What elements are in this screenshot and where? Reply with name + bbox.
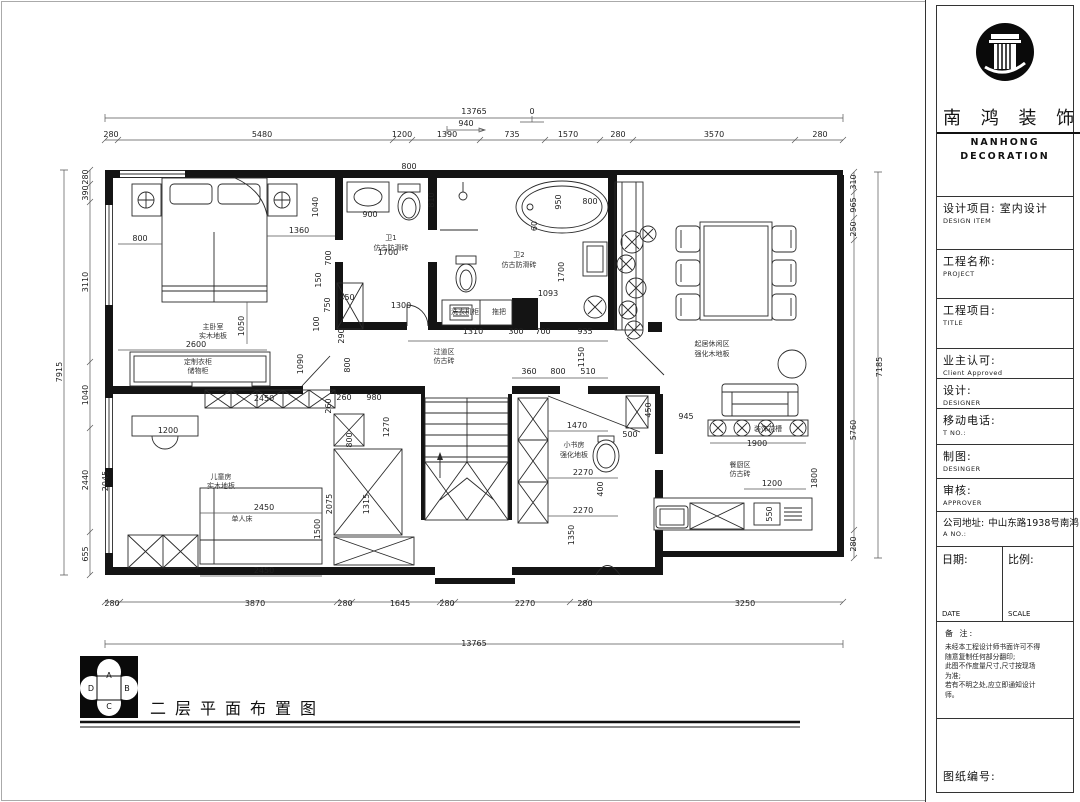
kitchen-counter: [654, 498, 812, 530]
dim-label: 450: [339, 293, 354, 302]
date-sub: DATE: [942, 610, 960, 618]
dim-label: 2045: [101, 471, 110, 491]
dim-label: 1200: [392, 130, 412, 139]
field-label: 设计项目:: [943, 202, 996, 215]
dim-label: 1200: [762, 479, 782, 488]
dim-label: 280: [812, 130, 827, 139]
master-bed: [162, 178, 267, 302]
dim-label: 980: [366, 393, 381, 402]
sofa: [722, 384, 798, 416]
title-block: 南 鸿 装 饰 NANHONG DECORATION 设计项目:室内设计 DES…: [925, 0, 1080, 802]
dim-label: 3570: [704, 130, 724, 139]
dim-label: 400: [596, 481, 605, 496]
dim-label: 1093: [538, 289, 558, 298]
note-line: 为准;: [945, 672, 1067, 682]
dim-label: 280: [103, 130, 118, 139]
dim-label: 1570: [558, 130, 578, 139]
plants: [615, 182, 656, 339]
note-line: 若有不明之处,应立即通知设计: [945, 681, 1067, 691]
room-label: 过道区: [434, 347, 455, 356]
dim-label: 2075: [325, 494, 334, 514]
dim-label: 0: [529, 107, 534, 116]
field-sub: Client Approved: [943, 369, 1067, 377]
dim-label: 5760: [849, 420, 858, 440]
dim-label: 1050: [237, 316, 246, 336]
dining-set: [676, 222, 796, 320]
compass-c: C: [106, 702, 112, 711]
field-label: 公司地址:: [943, 518, 984, 529]
dim-label: 2450: [254, 503, 274, 512]
dim-label: 280: [610, 130, 625, 139]
dim-label: 260: [336, 393, 351, 402]
room-label: 小书房: [564, 440, 585, 449]
room-label: 卫2: [513, 251, 524, 259]
field-label: 工程名称:: [943, 255, 996, 268]
date-scale-row: 日期: DATE 比例: SCALE: [937, 546, 1073, 622]
field-label: 移动电话:: [943, 414, 996, 427]
note-line: 随意复制任何部分翻印;: [945, 653, 1067, 663]
dim-label: 450: [644, 402, 653, 417]
living-door-leaf: [627, 338, 664, 375]
room-label: 仿古防滑砖: [502, 260, 537, 269]
dim-label: 945: [678, 412, 693, 421]
dim-label: 1645: [390, 599, 410, 608]
dim-label: 2450: [254, 566, 274, 575]
field-design-item: 设计项目:室内设计 DESIGN ITEM: [937, 196, 1073, 249]
field-value: 中山东路1938号南鸿: [988, 518, 1079, 529]
room-label: 单人床: [232, 514, 253, 523]
dim-label: 2270: [515, 599, 535, 608]
room-label: 拖把: [492, 307, 506, 316]
column-logo-icon: [973, 20, 1037, 88]
floor-plan-drawing: 1376528054801200139094073515702803570280…: [0, 0, 925, 802]
compass-a: A: [106, 671, 112, 680]
scale-label: 比例:: [1008, 551, 1068, 567]
notes-block: 备 注: 未经本工程设计师书面许可不得 随意复制任何部分翻印; 此图不作度量尺寸…: [937, 621, 1073, 718]
dim-label: 280: [337, 599, 352, 608]
room-label: 仿古防滑砖: [374, 243, 409, 252]
dim-label: 280: [849, 536, 858, 551]
dim-label: 550: [765, 506, 774, 521]
dim-label: 1470: [567, 421, 587, 430]
dim-label: 800: [343, 357, 352, 372]
field-label: 业主认可:: [943, 354, 996, 367]
dim-label: 250: [849, 221, 858, 236]
stairs-up-arrow: [437, 452, 443, 460]
dim-label: 100: [312, 316, 321, 331]
field-sub: DESINGER: [943, 465, 1067, 473]
room-label: 装饰花槽: [754, 424, 782, 433]
dim-label: 1360: [289, 226, 309, 235]
dim-label: 810: [427, 192, 436, 207]
dim-label: 3870: [245, 599, 265, 608]
room-label: 主卧室: [203, 322, 224, 331]
dim-label: 13765: [461, 639, 486, 648]
dim-label: 360: [521, 367, 536, 376]
room-label: 定制衣柜: [184, 357, 212, 366]
side-table: [778, 350, 806, 378]
field-approver: 审核: APPROVER: [937, 478, 1073, 511]
dim-label: 1040: [311, 197, 320, 217]
field-sub: PROJECT: [943, 270, 1067, 278]
dim-label: 800: [132, 234, 147, 243]
dim-label: 290: [337, 328, 346, 343]
dim-label: 900: [362, 210, 377, 219]
dim-label: 965: [849, 197, 858, 212]
dim-label: 800: [550, 367, 565, 376]
date-label: 日期:: [942, 551, 997, 567]
scale-cell: 比例: SCALE: [1003, 547, 1073, 622]
dim-label: 280: [577, 599, 592, 608]
dim-label: 1040: [81, 385, 90, 405]
dim-label: 700: [535, 327, 550, 336]
field-label: 制图:: [943, 450, 972, 463]
dim-label: 2270: [573, 506, 593, 515]
field-project-name: 工程名称: PROJECT: [937, 249, 1073, 298]
company-name-en1: NANHONG: [937, 137, 1073, 148]
room-label: 洗衣机柜: [451, 307, 479, 316]
dim-label: 800: [401, 162, 416, 171]
dim-label: 700: [324, 250, 333, 265]
drawing-number-block: 图纸编号:: [937, 718, 1073, 792]
dim-label: 260: [324, 398, 333, 413]
compass-d: D: [88, 684, 94, 693]
kids-room: [128, 390, 335, 568]
stairs: [425, 398, 508, 520]
room-label: 强化木地板: [695, 349, 730, 358]
dim-label: 2270: [573, 468, 593, 477]
dim-label: 735: [504, 130, 519, 139]
dim-label: 1310: [463, 327, 483, 336]
dim-label: 1900: [747, 439, 767, 448]
dim-label: 1800: [810, 468, 819, 488]
field-mobile: 移动电话: T NO.:: [937, 408, 1073, 444]
field-sub: TITLE: [943, 319, 1067, 327]
room-label: 实木地板: [199, 331, 227, 340]
field-label: 审核:: [943, 484, 972, 497]
dim-label: 510: [580, 367, 595, 376]
dim-label: 60: [530, 221, 539, 231]
dim-label: 750: [323, 297, 332, 312]
room-label: 仿古砖: [730, 469, 751, 478]
room-label: 强化地板: [560, 450, 588, 459]
room-label: 儿童房: [211, 472, 232, 481]
field-company-address: 公司地址:中山东路1938号南鸿 A NO.:: [937, 511, 1073, 546]
dim-label: 280: [439, 599, 454, 608]
field-project-title: 工程项目: TITLE: [937, 298, 1073, 348]
dim-label: 300: [508, 327, 523, 336]
field-designer: 设计: DESIGNER: [937, 378, 1073, 408]
notes-title: 备 注:: [945, 628, 1067, 639]
note-line: 师。: [945, 691, 1067, 701]
field-sub: DESIGN ITEM: [943, 217, 1067, 225]
company-logo: 南 鸿 装 饰 NANHONG DECORATION: [937, 6, 1073, 196]
dim-label: 1300: [391, 301, 411, 310]
dim-label: 280: [104, 599, 119, 608]
room-label: 储物柜: [188, 366, 209, 375]
field-sub: APPROVER: [943, 499, 1067, 507]
dim-label: 7915: [55, 362, 64, 382]
drawing-title: 二层平面布置图: [150, 699, 325, 718]
room-label: 仿古砖: [434, 356, 455, 365]
dim-label: 1270: [382, 417, 391, 437]
dim-label: 3110: [81, 272, 90, 292]
dim-label: 280: [81, 169, 90, 184]
scale-sub: SCALE: [1008, 610, 1030, 618]
room-label: 实木地板: [207, 481, 235, 490]
field-sub: T NO.:: [943, 429, 1067, 437]
dim-label: 1200: [158, 426, 178, 435]
note-line: 未经本工程设计师书面许可不得: [945, 643, 1067, 653]
dim-label: 1315: [362, 494, 371, 514]
dim-label: 150: [314, 272, 323, 287]
dim-label: 1350: [567, 525, 576, 545]
dim-label: 940: [458, 119, 473, 128]
dim-label: 1390: [437, 130, 457, 139]
dim-label: 1150: [577, 347, 586, 367]
dim-label: 655: [81, 546, 90, 561]
dim-label: 3250: [735, 599, 755, 608]
dim-label: 390: [81, 185, 90, 200]
field-sub: DESIGNER: [943, 399, 1067, 407]
field-label: 设计:: [943, 384, 972, 397]
dim-label: 2440: [81, 470, 90, 490]
room-label: 起居休闲区: [695, 339, 730, 348]
dim-label: 2450: [254, 394, 274, 403]
compass-b: B: [124, 684, 130, 693]
drawing-number-label: 图纸编号:: [943, 768, 996, 784]
dim-label: 7185: [875, 357, 884, 377]
field-value: 室内设计: [1000, 202, 1048, 215]
room-label: 餐厨区: [730, 460, 751, 469]
field-label: 工程项目:: [943, 304, 996, 317]
date-cell: 日期: DATE: [937, 547, 1003, 622]
dim-label: 5480: [252, 130, 272, 139]
note-line: 此图不作度量尺寸,尺寸按现场: [945, 662, 1067, 672]
company-name-en2: DECORATION: [937, 151, 1073, 162]
field-sub: A NO.:: [943, 530, 1067, 538]
dim-label: 1700: [557, 262, 566, 282]
company-name-cn: 南 鸿 装 饰: [937, 104, 1080, 134]
dim-label: 2600: [186, 340, 206, 349]
field-drafter: 制图: DESINGER: [937, 444, 1073, 478]
dim-label: 1090: [296, 354, 305, 374]
bedroom-door-leaf: [302, 356, 330, 386]
dim-label: 935: [577, 327, 592, 336]
dim-label: 800: [582, 197, 597, 206]
dim-label: 800: [345, 432, 354, 447]
dim-label: 950: [554, 194, 563, 209]
compass-icon: A B C D: [80, 656, 138, 718]
dim-label: 310: [849, 174, 858, 189]
dim-label: 1500: [313, 519, 322, 539]
dim-label: 500: [622, 430, 637, 439]
field-client-approved: 业主认可: Client Approved: [937, 348, 1073, 378]
room-label: 卫1: [385, 234, 396, 242]
dim-label: 13765: [461, 107, 486, 116]
